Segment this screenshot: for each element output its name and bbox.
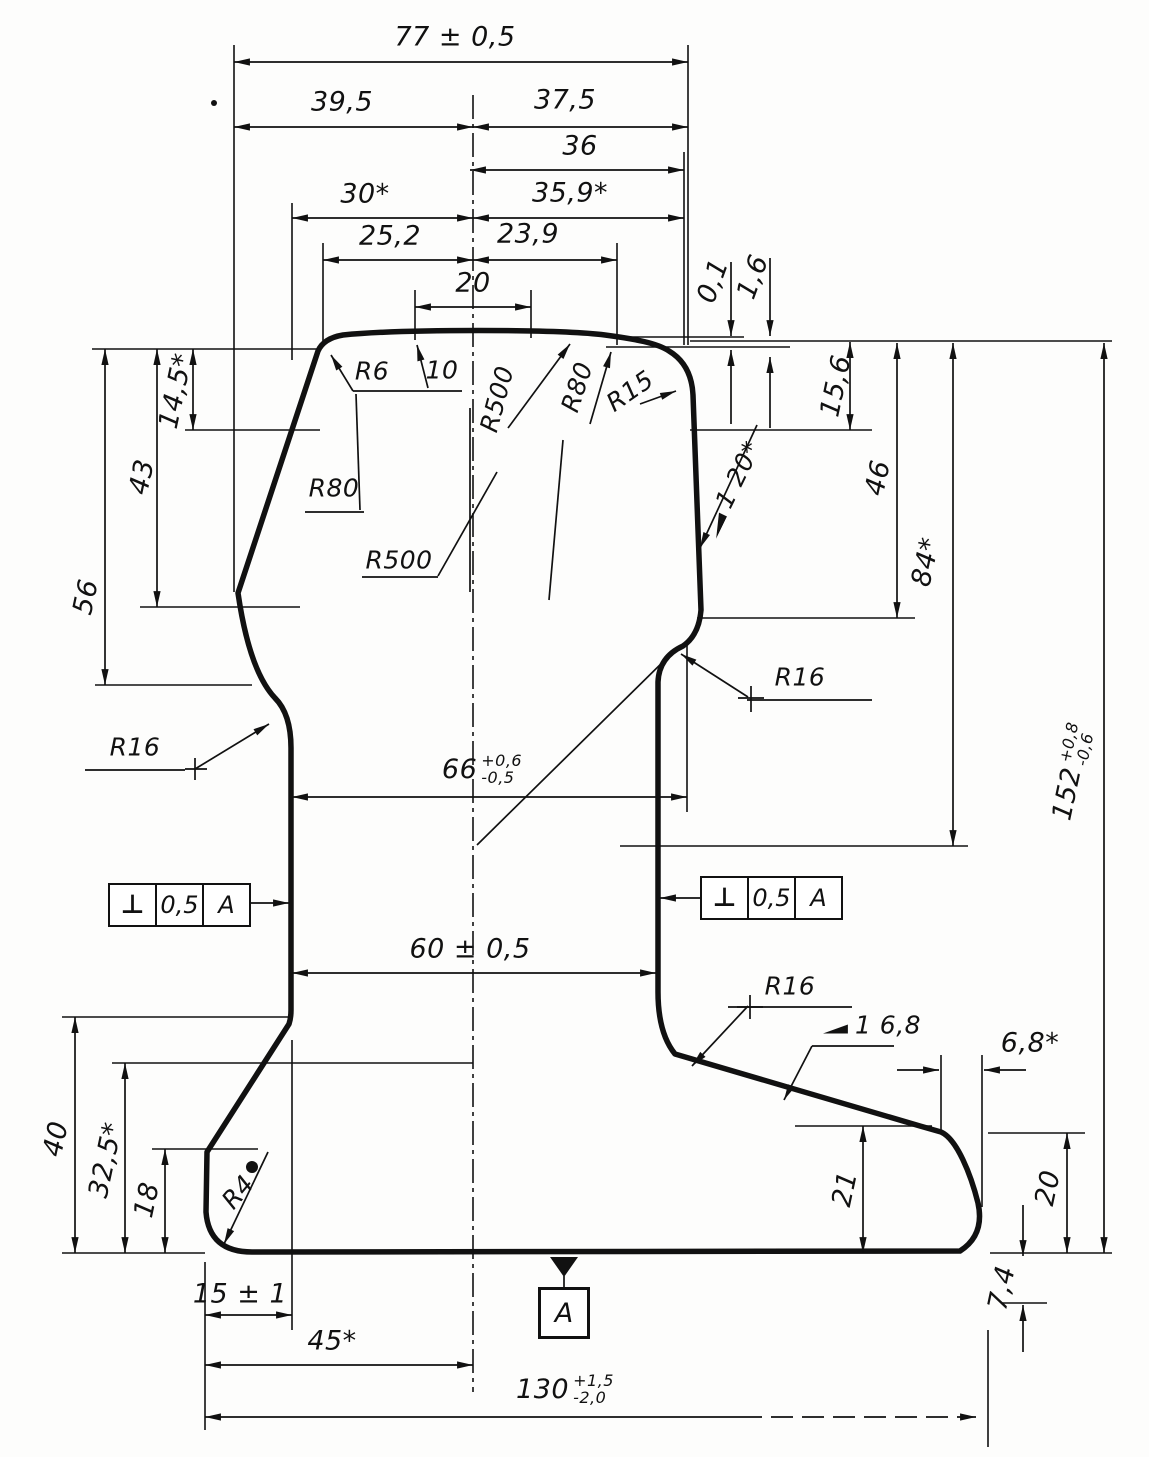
dim-130-base: 130 bbox=[516, 1375, 569, 1406]
dim-15-label: 15 ± 1 bbox=[193, 1279, 287, 1310]
radius-r16-web-right-label: R16 bbox=[775, 663, 826, 692]
datum-a-flag: A bbox=[538, 1287, 590, 1339]
stray-dot bbox=[211, 100, 217, 106]
perpendicularity-icon: ⊥ bbox=[702, 878, 749, 918]
dim-66-label: 66 +0,6 -0,5 bbox=[442, 753, 522, 787]
dim-66-base: 66 bbox=[442, 755, 477, 786]
fcf-right-tolerance: 0,5 bbox=[749, 878, 796, 918]
dim-6-8-label: 6,8* bbox=[1001, 1028, 1059, 1059]
dim-77-label: 77 ± 0,5 bbox=[394, 22, 515, 53]
drawing-canvas bbox=[0, 0, 1149, 1457]
dim-35-9-label: 35,9* bbox=[532, 178, 608, 209]
ink-blot bbox=[246, 1161, 258, 1173]
radius-r6-label: R6 bbox=[355, 357, 389, 386]
dim-130-tolerances: +1,5 -2,0 bbox=[573, 1373, 614, 1407]
fcf-left-datum-ref: A bbox=[204, 885, 249, 925]
fcf-right-datum-ref: A bbox=[796, 878, 841, 918]
dim-23-9-label: 23,9 bbox=[497, 219, 559, 250]
fcf-perpendicularity-left: ⊥ 0,5 A bbox=[108, 883, 251, 927]
dim-66-lower-tol: -0,5 bbox=[481, 770, 522, 787]
perpendicularity-icon: ⊥ bbox=[110, 885, 157, 925]
fcf-left-tolerance: 0,5 bbox=[157, 885, 204, 925]
datum-triangle-icon bbox=[550, 1257, 578, 1277]
dim-25-2-label: 25,2 bbox=[359, 221, 421, 252]
dim-30-label: 30* bbox=[340, 179, 389, 210]
dim-66-tolerances: +0,6 -0,5 bbox=[481, 753, 522, 787]
engineering-drawing-rail-profile: 77 ± 0,5 39,5 37,5 36 30* 35,9* 25,2 23,… bbox=[0, 0, 1149, 1457]
dim-130-lower-tol: -2,0 bbox=[573, 1390, 614, 1407]
dim-20-head-label: 20 bbox=[455, 268, 490, 299]
slope-symbol bbox=[823, 1025, 848, 1034]
fcf-perpendicularity-right: ⊥ 0,5 A bbox=[700, 876, 843, 920]
radius-r80-left-label: R80 bbox=[309, 474, 360, 503]
slope-symbol bbox=[708, 512, 727, 538]
slope-1-6-8-label: 1 6,8 bbox=[823, 1011, 921, 1040]
dimension-lines bbox=[75, 62, 1104, 1417]
dim-45-label: 45* bbox=[307, 1326, 356, 1357]
flat-10-label: 10 bbox=[426, 356, 459, 385]
radius-r16-foot-right-label: R16 bbox=[765, 972, 816, 1001]
dim-37-5-label: 37,5 bbox=[534, 85, 596, 116]
dim-39-5-label: 39,5 bbox=[311, 87, 373, 118]
slope-1-6-8-text: 1 6,8 bbox=[855, 1011, 921, 1040]
radius-r16-web-left-label: R16 bbox=[110, 733, 161, 762]
radius-r500-left-label: R500 bbox=[365, 546, 432, 575]
dim-36-label: 36 bbox=[562, 131, 597, 162]
extension-lines bbox=[62, 45, 1112, 1447]
dim-60-label: 60 ± 0,5 bbox=[409, 934, 530, 965]
dim-130-label: 130 +1,5 -2,0 bbox=[516, 1373, 614, 1407]
